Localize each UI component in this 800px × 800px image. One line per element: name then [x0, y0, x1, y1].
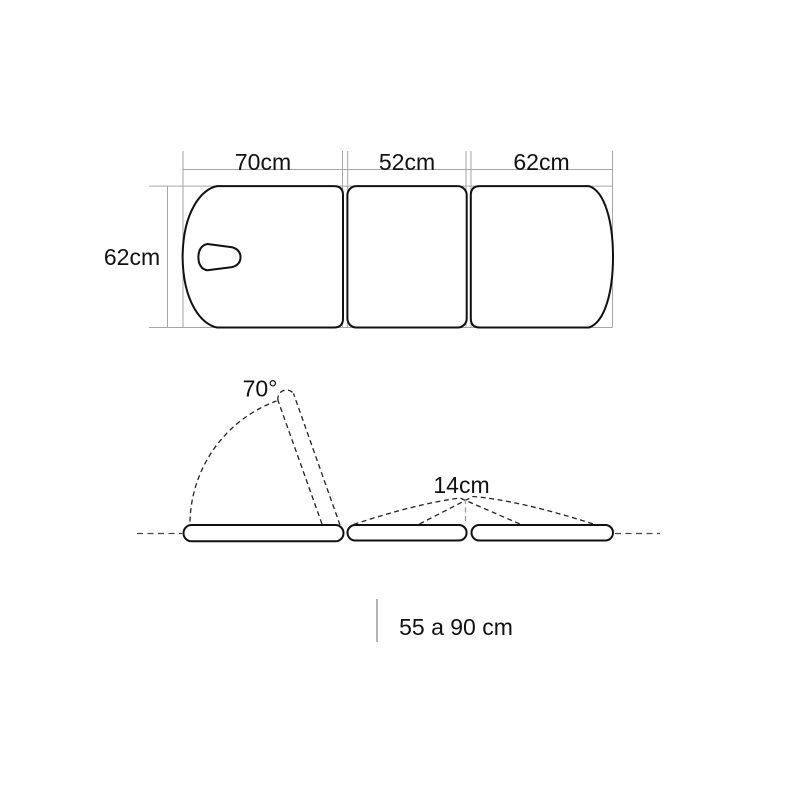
svg-text:55 a 90 cm: 55 a 90 cm	[399, 614, 513, 640]
svg-text:14cm: 14cm	[433, 472, 489, 498]
svg-text:52cm: 52cm	[379, 149, 435, 175]
svg-text:70°: 70°	[243, 376, 278, 402]
svg-text:70cm: 70cm	[235, 149, 291, 175]
svg-text:62cm: 62cm	[513, 149, 569, 175]
svg-text:62cm: 62cm	[104, 244, 160, 270]
